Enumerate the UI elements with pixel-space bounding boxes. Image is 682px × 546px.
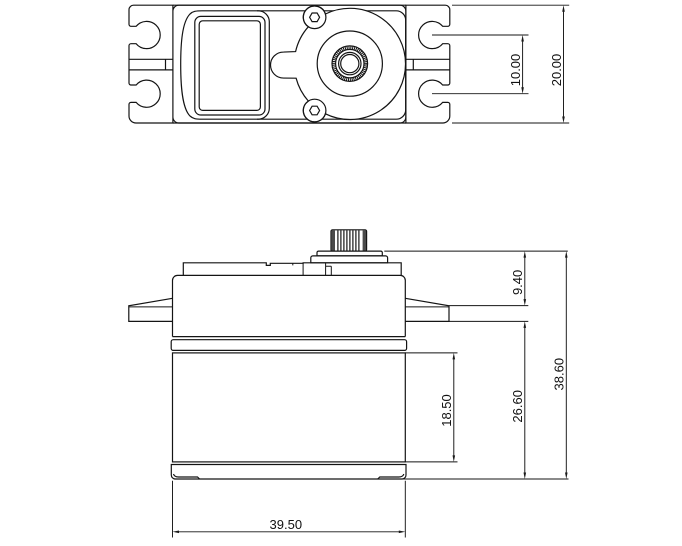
svg-text:10.00: 10.00: [508, 54, 523, 87]
svg-text:26.60: 26.60: [510, 390, 525, 423]
svg-text:39.50: 39.50: [270, 517, 303, 532]
svg-text:38.60: 38.60: [552, 358, 567, 391]
svg-text:20.00: 20.00: [549, 54, 564, 87]
svg-text:9.40: 9.40: [510, 270, 525, 295]
svg-text:18.50: 18.50: [439, 394, 454, 427]
